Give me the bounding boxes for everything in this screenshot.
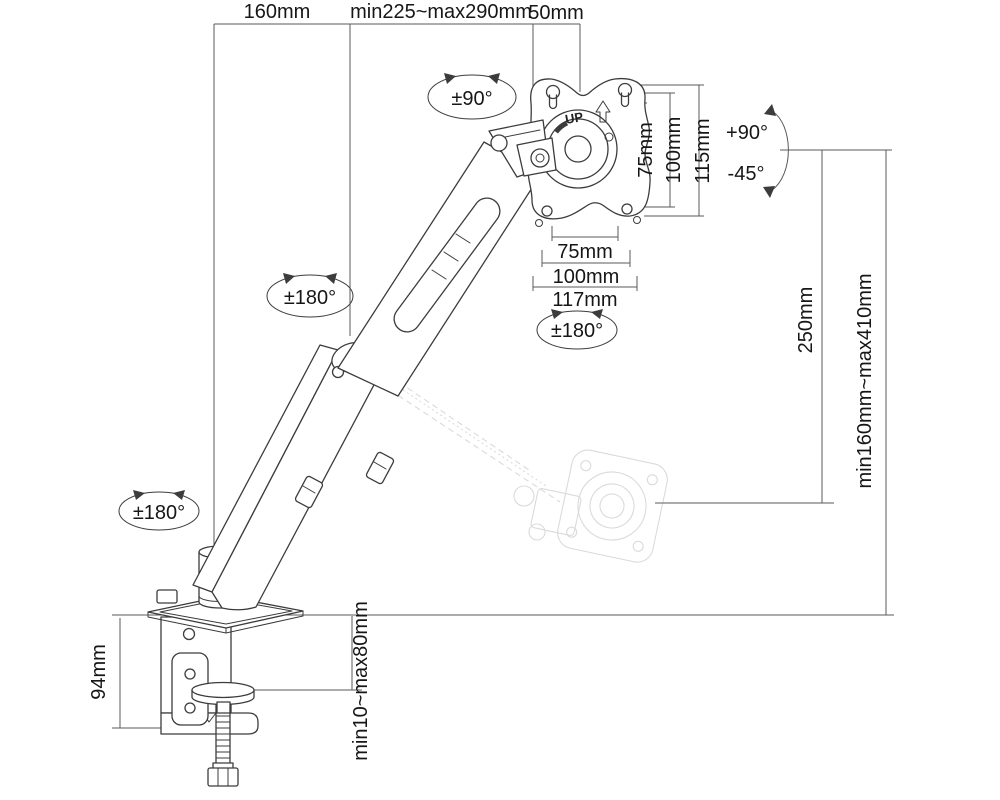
tilt-label-up: +90° <box>726 122 768 144</box>
desk-clamp <box>161 617 258 786</box>
vesa-up-label: UP <box>564 109 585 127</box>
upper-arm <box>338 142 541 396</box>
dim-label-vesa-w75: 75mm <box>557 241 613 263</box>
lower-arm <box>193 345 395 610</box>
clamp-dimension-lines <box>112 616 362 728</box>
dim-label-vesa-w117: 117mm <box>552 289 617 311</box>
cable-clip-upper <box>365 451 394 484</box>
clamp-screw-nut <box>208 763 238 786</box>
dim-label-drop-range: 250mm <box>795 287 817 354</box>
diagram-svg: UP 160mm min225~max290mm 50mm <box>0 0 1000 800</box>
dim-label-head-width: 50mm <box>528 2 584 24</box>
rotation-label-elbow: ±180° <box>284 287 336 309</box>
rotation-label-vesa: ±180° <box>551 320 603 342</box>
dim-label-arm-reach: min225~max290mm <box>350 1 532 23</box>
rotation-label-head: ±90° <box>451 88 492 110</box>
dim-label-vesa-h100: 100mm <box>663 117 685 184</box>
dim-label-desk-thickness: min10~max80mm <box>350 601 372 761</box>
tilt-arc <box>763 104 788 198</box>
tilt-label-down: -45° <box>728 163 765 185</box>
ghost-arm-lowered-position <box>366 360 670 565</box>
ghost-vesa-plate <box>555 447 671 565</box>
monitor-arm-dimension-diagram: UP 160mm min225~max290mm 50mm <box>0 0 1000 800</box>
dim-label-vesa-h75: 75mm <box>635 122 657 178</box>
dim-label-vesa-h115: 115mm <box>692 118 714 183</box>
dim-label-base-offset: 160mm <box>244 1 311 23</box>
dim-label-height-range: min160mm~max410mm <box>854 273 876 488</box>
dim-label-vesa-w100: 100mm <box>553 266 620 288</box>
rotation-label-base: ±180° <box>133 502 185 524</box>
dim-label-clamp-height: 94mm <box>88 644 110 700</box>
